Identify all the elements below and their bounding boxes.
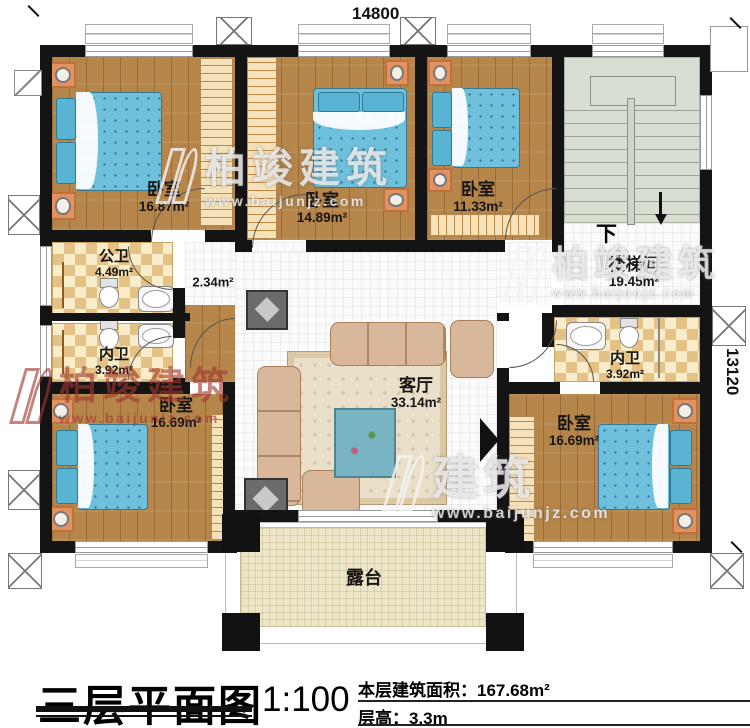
column-marker (400, 17, 436, 45)
toilet (618, 318, 640, 348)
column-marker (8, 553, 42, 589)
window-sill (533, 554, 673, 568)
terrace-door (298, 510, 438, 522)
shower-divider (658, 318, 660, 378)
window (85, 45, 193, 57)
column-marker (216, 17, 252, 45)
wall-segment (415, 45, 427, 252)
wall-segment (415, 240, 505, 252)
corner-box (14, 70, 42, 96)
plan-title: 三层平面图 (38, 672, 263, 728)
stair-arrow-line (659, 192, 662, 216)
nightstand (428, 60, 452, 86)
stair-arrow-head (655, 214, 667, 225)
room-label-public-bath: 公卫 4.49m² (95, 249, 133, 279)
title-underline-thin (36, 715, 252, 717)
bed-sheet (452, 88, 468, 166)
pillow (362, 92, 404, 112)
window (447, 45, 531, 57)
room-label-bedroom-top-right: 卧室 11.33m² (453, 180, 503, 214)
wall-segment (509, 382, 560, 394)
pillow (56, 430, 78, 466)
nightstand (385, 60, 409, 86)
terrace-column (222, 613, 260, 651)
window (700, 95, 712, 170)
dimension-right: 13120 (722, 348, 742, 395)
wall-segment (40, 230, 151, 242)
window (533, 541, 673, 553)
window-sill (85, 24, 193, 44)
room-label-living-room: 客厅 33.14m² (391, 376, 441, 410)
room-label-bedroom-top-middle: 卧室 14.89m² (297, 191, 347, 225)
info-divider (358, 700, 750, 702)
wall-segment (552, 305, 712, 317)
window-sill (75, 554, 208, 568)
wall-segment (600, 382, 712, 394)
room-label-terrace: 露台 (346, 568, 382, 588)
wall-segment (205, 230, 235, 242)
nightstand (428, 168, 452, 192)
nightstand (50, 62, 76, 88)
nightstand (672, 508, 698, 534)
window (40, 246, 52, 306)
sink (566, 322, 606, 350)
window (298, 45, 390, 57)
stair-divider (627, 98, 635, 225)
pillow (670, 468, 692, 504)
column-marker (710, 553, 744, 589)
room-label-bedroom-bottom-right: 卧室 16.69m² (549, 414, 599, 448)
sofa (330, 322, 446, 366)
towel-pole (62, 262, 64, 308)
pillow (56, 98, 76, 140)
chimney-outline (710, 26, 748, 72)
terrace-column (486, 514, 524, 552)
terrace-column (222, 514, 260, 552)
title-underline (36, 706, 252, 712)
terrace-column (486, 613, 524, 651)
dimension-tick (730, 541, 742, 553)
armchair (450, 320, 494, 378)
bed-sheet (652, 424, 668, 508)
wall-segment (497, 313, 509, 321)
nightstand (383, 188, 409, 212)
wall-segment (557, 240, 564, 252)
pillow (56, 142, 76, 184)
window-sill (592, 24, 664, 44)
pillow (56, 468, 78, 504)
floor-area-label: 本层建筑面积： (358, 681, 477, 700)
room-label-ensuite-left: 内卫 3.92m² (95, 347, 133, 377)
window (40, 325, 52, 377)
room-label-bedroom-bottom-left: 卧室 16.69m² (151, 396, 201, 430)
dimension-top: 14800 (352, 4, 399, 24)
pillow (432, 130, 452, 166)
wall-segment (235, 45, 247, 242)
window-sill (298, 24, 390, 44)
floor-plan-canvas: 卧室 16.87m² 卧室 14.89m² 卧室 11.33m² 楼梯间 19.… (0, 0, 750, 728)
plan-scale: 1:100 (262, 680, 350, 720)
wall-segment (40, 382, 190, 394)
floor-area-value: 167.68m² (477, 681, 550, 700)
dimension-tick (27, 5, 39, 17)
coffee-table (334, 408, 396, 478)
towel-pole (62, 330, 64, 374)
room-label-stairwell: 楼梯间 19.45m² (609, 255, 660, 289)
pillow (318, 92, 360, 112)
floor-area-text: 本层建筑面积：167.68m² (358, 676, 550, 701)
stairs-down-label: 下 (596, 218, 617, 248)
room-label-bedroom-top-left: 卧室 16.87m² (139, 180, 189, 214)
wall-segment (306, 240, 427, 252)
bed-sheet (76, 92, 98, 189)
room-label-ensuite-right: 内卫 3.92m² (606, 351, 644, 381)
info-divider (358, 724, 750, 726)
window (592, 45, 664, 57)
cabinet (246, 290, 288, 330)
toilet (98, 278, 120, 308)
pillow (670, 430, 692, 466)
bed-sheet (78, 424, 94, 508)
wall-segment (235, 240, 252, 252)
column-marker (8, 195, 40, 235)
nightstand (672, 398, 698, 424)
pillow (432, 92, 452, 128)
door-arc (509, 320, 557, 368)
window (75, 541, 208, 553)
column-marker (8, 470, 40, 510)
nightstand (50, 192, 76, 220)
window-sill (447, 24, 531, 44)
column-marker (712, 306, 746, 346)
wall-segment (40, 313, 190, 321)
room-label-hallway: 2.34m² (192, 276, 233, 291)
